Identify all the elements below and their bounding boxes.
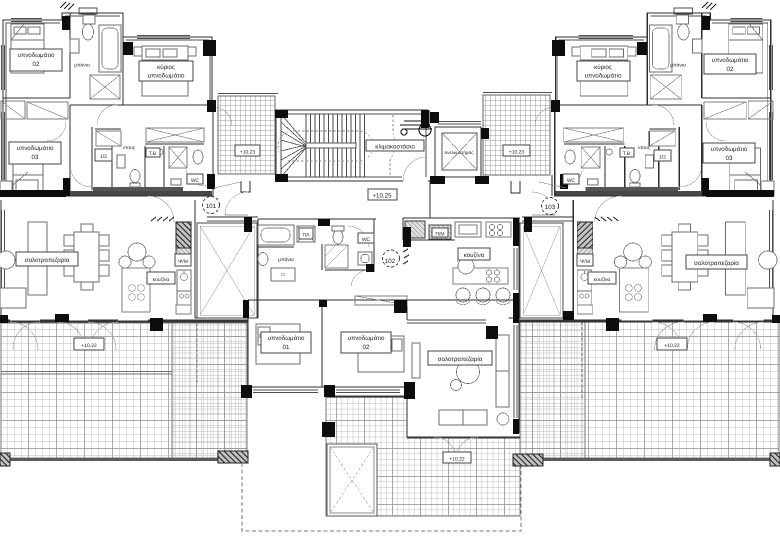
svg-text:WC: WC xyxy=(191,178,200,184)
svg-text:+10,22: +10,22 xyxy=(664,343,680,349)
svg-text:υπνοδωμάτιο: υπνοδωμάτιο xyxy=(711,146,748,153)
svg-text:υπνοδωμάτιο: υπνοδωμάτιο xyxy=(348,335,385,342)
svg-text:σαλοτραπεζαρία: σαλοτραπεζαρία xyxy=(25,257,70,264)
svg-text:Π/Μ: Π/Μ xyxy=(435,232,444,238)
svg-text:μπάνιο: μπάνιο xyxy=(670,63,686,69)
svg-text:02: 02 xyxy=(33,61,40,68)
svg-text:κύριος: κύριος xyxy=(157,64,175,71)
svg-text:02: 02 xyxy=(727,66,734,73)
svg-text:κύριος: κύριος xyxy=(594,64,612,71)
svg-text:ντους: ντους xyxy=(123,145,136,151)
svg-text:Ψ/Μ: Ψ/Μ xyxy=(178,259,188,265)
svg-text:02: 02 xyxy=(363,344,370,351)
svg-text:υπνοδωμάτιο: υπνοδωμάτιο xyxy=(712,57,749,64)
svg-text:Τ.Β: Τ.Β xyxy=(623,151,631,157)
svg-text:+10,23: +10,23 xyxy=(509,150,525,156)
svg-text:υπνοδωμάτιο: υπνοδωμάτιο xyxy=(148,73,185,80)
svg-text:σαλοτραπεζαρία: σαλοτραπεζαρία xyxy=(694,260,739,267)
svg-text:WC: WC xyxy=(362,237,371,243)
svg-text:κουζίνα: κουζίνα xyxy=(464,252,485,259)
svg-text:υπνοδωμάτιο: υπνοδωμάτιο xyxy=(585,73,622,80)
svg-text:+10,22: +10,22 xyxy=(81,343,97,349)
svg-text:+10,22: +10,22 xyxy=(449,457,465,463)
svg-text:1/2: 1/2 xyxy=(100,154,107,160)
svg-text:Ψ/Μ: Ψ/Μ xyxy=(580,259,590,265)
svg-text:υπνοδωμάτιο: υπνοδωμάτιο xyxy=(17,145,54,152)
svg-text:101: 101 xyxy=(206,203,217,210)
svg-text:σαλοτραπεζαρία: σαλοτραπεζαρία xyxy=(438,356,483,363)
svg-text:ΠΛ: ΠΛ xyxy=(303,233,311,239)
svg-text:μπάνιο: μπάνιο xyxy=(278,257,294,263)
svg-text:103: 103 xyxy=(545,204,556,211)
svg-text:+10,25: +10,25 xyxy=(372,193,392,200)
svg-text:01: 01 xyxy=(283,344,290,351)
svg-text:υπνοδωμάτιο: υπνοδωμάτιο xyxy=(268,335,305,342)
svg-text:κουζίνα: κουζίνα xyxy=(594,277,611,283)
svg-text:υπνοδωμάτιο: υπνοδωμάτιο xyxy=(18,52,55,59)
svg-text:1/2: 1/2 xyxy=(659,155,666,161)
svg-text:μπάνιο: μπάνιο xyxy=(74,63,90,69)
svg-text:κουζίνα: κουζίνα xyxy=(153,277,170,283)
svg-text:102: 102 xyxy=(385,258,396,265)
svg-text:03: 03 xyxy=(32,154,39,161)
svg-text:Τ.Β: Τ.Β xyxy=(149,151,157,157)
svg-text:03: 03 xyxy=(726,155,733,162)
svg-text:ντους: ντους xyxy=(638,145,651,151)
svg-text:κλιμακοστάσιο: κλιμακοστάσιο xyxy=(375,144,415,151)
svg-text:WC: WC xyxy=(567,178,576,184)
svg-text:ανελκυστήρας: ανελκυστήρας xyxy=(445,150,475,155)
svg-text:+10,23: +10,23 xyxy=(240,150,256,156)
